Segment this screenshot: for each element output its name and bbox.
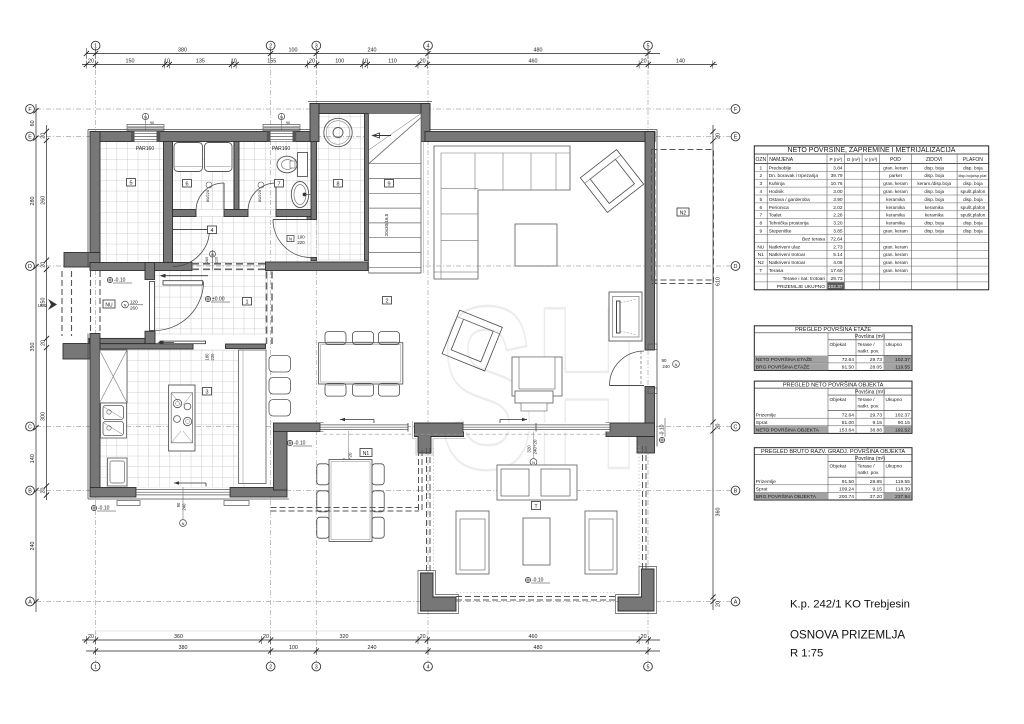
- svg-text:28.05: 28.05: [870, 365, 883, 371]
- svg-text:360: 360: [716, 508, 722, 517]
- svg-text:8: 8: [336, 182, 339, 188]
- svg-text:380: 380: [179, 645, 188, 651]
- svg-text:1: 1: [94, 665, 97, 671]
- svg-text:PREGLED POVRŠINA ETAŽE: PREGLED POVRŠINA ETAŽE: [795, 325, 871, 333]
- svg-text:keramika: keramika: [886, 213, 905, 218]
- svg-text:91.50: 91.50: [842, 479, 855, 485]
- svg-text:gran. keram: gran. keram: [883, 229, 908, 234]
- svg-text:Kuhinja: Kuhinja: [769, 181, 785, 187]
- svg-text:O (m²): O (m²): [847, 157, 861, 162]
- svg-text:BRG POVRŠINA OBJEKTA: BRG POVRŠINA OBJEKTA: [756, 493, 817, 500]
- svg-text:ZIDOVI: ZIDOVI: [926, 157, 943, 163]
- svg-text:300: 300: [41, 412, 47, 421]
- svg-text:NETO POVRŠINE, ZAPREMINE I MET: NETO POVRŠINE, ZAPREMINE I METRIJALIZACI…: [788, 145, 956, 154]
- svg-text:V (m³): V (m³): [865, 157, 878, 162]
- svg-text:155: 155: [267, 59, 276, 65]
- svg-text:20: 20: [41, 340, 47, 346]
- svg-text:192.52: 192.52: [895, 428, 910, 434]
- svg-text:10.76: 10.76: [831, 181, 843, 187]
- svg-text:Dn. boravak i trpezarija: Dn. boravak i trpezarija: [769, 173, 819, 179]
- svg-text:29.73: 29.73: [870, 412, 883, 418]
- svg-text:disp. boja: disp. boja: [963, 181, 983, 186]
- svg-text:disp. boja: disp. boja: [963, 221, 983, 226]
- svg-text:610: 610: [716, 277, 722, 286]
- svg-text:N: N: [280, 115, 283, 119]
- svg-text:20: 20: [88, 59, 94, 65]
- svg-text:10: 10: [231, 59, 237, 65]
- svg-text:natkr. pov.: natkr. pov.: [858, 348, 880, 354]
- svg-text:10: 10: [362, 59, 368, 65]
- svg-text:28.85: 28.85: [870, 479, 883, 485]
- svg-text:9: 9: [387, 182, 390, 188]
- svg-text:20x30/16.5: 20x30/16.5: [384, 213, 389, 236]
- svg-text:Terase /: Terase /: [858, 464, 876, 470]
- svg-text:gran. keram: gran. keram: [883, 244, 908, 249]
- svg-text:140: 140: [676, 59, 685, 65]
- svg-text:D: D: [28, 264, 32, 270]
- svg-text:-0.10: -0.10: [532, 578, 544, 584]
- svg-text:38.88: 38.88: [870, 428, 883, 434]
- svg-text:200.74: 200.74: [839, 494, 854, 500]
- svg-text:PREGLED NETO POVRŠINA OBJEKTA: PREGLED NETO POVRŠINA OBJEKTA: [783, 381, 884, 388]
- svg-text:102.37: 102.37: [828, 284, 843, 290]
- svg-text:153.64: 153.64: [839, 428, 854, 434]
- svg-text:D: D: [734, 264, 738, 270]
- svg-text:NETO POVRŠINA OBJEKTA: NETO POVRŠINA OBJEKTA: [756, 427, 820, 434]
- svg-text:Stepenište: Stepenište: [769, 229, 792, 235]
- svg-text:Ukupno: Ukupno: [886, 342, 903, 348]
- svg-text:320: 320: [340, 634, 349, 640]
- svg-text:460: 460: [529, 59, 538, 65]
- svg-text:3: 3: [759, 181, 762, 187]
- svg-text:81.00: 81.00: [842, 420, 855, 426]
- svg-text:PAR160: PAR160: [136, 146, 154, 152]
- svg-text:480: 480: [534, 645, 543, 651]
- svg-text:Terase i nat. trotoari: Terase i nat. trotoari: [783, 276, 825, 282]
- svg-text:N: N: [124, 303, 127, 307]
- svg-text:380: 380: [178, 48, 187, 54]
- svg-text:3.84: 3.84: [833, 165, 843, 171]
- svg-text:Prizemlje: Prizemlje: [756, 412, 776, 418]
- svg-text:72.64: 72.64: [842, 412, 855, 418]
- svg-text:N: N: [182, 522, 185, 526]
- svg-text:119.55: 119.55: [895, 365, 910, 371]
- svg-text:4: 4: [427, 665, 430, 671]
- svg-text:119.55: 119.55: [895, 479, 910, 485]
- svg-text:A: A: [28, 600, 32, 606]
- svg-text:3.85: 3.85: [833, 229, 843, 235]
- svg-text:20: 20: [263, 634, 269, 640]
- svg-text:parket: parket: [889, 173, 902, 178]
- svg-text:100: 100: [289, 48, 298, 54]
- svg-text:N: N: [289, 236, 292, 241]
- svg-text:2.02: 2.02: [833, 205, 843, 211]
- svg-text:R 1:75: R 1:75: [790, 648, 823, 660]
- svg-text:2.28: 2.28: [833, 213, 843, 219]
- svg-text:N1: N1: [363, 451, 370, 457]
- svg-text:20: 20: [41, 133, 47, 139]
- svg-text:POD: POD: [890, 157, 901, 163]
- svg-text:135: 135: [196, 59, 205, 65]
- svg-text:90: 90: [286, 121, 290, 125]
- svg-text:gran. keram: gran. keram: [883, 260, 908, 265]
- svg-text:N2: N2: [680, 210, 687, 216]
- svg-text:5.14: 5.14: [833, 252, 843, 258]
- svg-text:Terasa: Terasa: [769, 268, 784, 274]
- svg-text:B: B: [28, 489, 32, 495]
- svg-text:natkr. pov.: natkr. pov.: [858, 404, 880, 410]
- svg-text:keramika: keramika: [886, 197, 905, 202]
- svg-text:Toalet: Toalet: [769, 213, 782, 219]
- svg-text:6: 6: [759, 205, 762, 211]
- svg-text:Prizemlje: Prizemlje: [756, 479, 776, 485]
- svg-text:gran. keram: gran. keram: [883, 252, 908, 257]
- svg-text:T: T: [759, 268, 762, 274]
- svg-text:PAR160: PAR160: [272, 146, 290, 152]
- svg-text:Tehnička prostorija: Tehnička prostorija: [769, 221, 809, 227]
- svg-text:Terase /: Terase /: [858, 342, 876, 348]
- svg-text:3: 3: [205, 390, 208, 396]
- svg-text:N: N: [144, 115, 147, 119]
- svg-text:10: 10: [164, 59, 170, 65]
- svg-text:Površina (m²): Površina (m²): [855, 389, 885, 395]
- svg-text:Sprat: Sprat: [756, 487, 768, 493]
- svg-text:disp. boja: disp. boja: [963, 197, 983, 202]
- svg-text:9: 9: [759, 229, 762, 235]
- svg-text:37.20: 37.20: [870, 494, 883, 500]
- svg-text:disp. boja: disp. boja: [924, 189, 944, 194]
- svg-text:240: 240: [182, 503, 187, 511]
- svg-text:disp. boja: disp. boja: [924, 165, 944, 170]
- svg-text:Ostava / garderoba: Ostava / garderoba: [769, 197, 810, 203]
- svg-text:1: 1: [245, 300, 248, 306]
- svg-text:4: 4: [210, 228, 213, 234]
- svg-text:102.37: 102.37: [895, 357, 910, 363]
- svg-text:disp.boja/sp.plaf.: disp.boja/sp.plaf.: [958, 173, 987, 178]
- svg-text:109.24: 109.24: [839, 487, 854, 493]
- svg-text:2: 2: [385, 299, 388, 305]
- svg-text:PLAFON: PLAFON: [963, 157, 983, 163]
- svg-text:spušt.plafon: spušt.plafon: [961, 189, 986, 194]
- svg-text:260: 260: [130, 306, 138, 311]
- svg-text:disp. boja: disp. boja: [963, 229, 983, 234]
- svg-text:NU: NU: [757, 244, 764, 250]
- svg-text:-0.10: -0.10: [114, 278, 126, 284]
- svg-text:320: 320: [527, 445, 532, 453]
- svg-text:3.90: 3.90: [833, 197, 843, 203]
- svg-text:±0.00: ±0.00: [212, 297, 225, 303]
- svg-text:1: 1: [759, 165, 762, 171]
- svg-text:gran. keram: gran. keram: [883, 165, 908, 170]
- svg-text:spušt.plafon: spušt.plafon: [961, 213, 986, 218]
- svg-text:disp. boja: disp. boja: [924, 197, 944, 202]
- svg-text:N: N: [211, 253, 214, 257]
- svg-text:K.p. 242/1 KO Trebjesin: K.p. 242/1 KO Trebjesin: [790, 599, 910, 611]
- svg-text:Bez terasa: Bez terasa: [802, 236, 825, 242]
- svg-text:E: E: [28, 135, 32, 141]
- svg-text:2: 2: [269, 665, 272, 671]
- svg-text:3: 3: [315, 665, 318, 671]
- svg-text:gran. keram: gran. keram: [883, 268, 908, 273]
- svg-text:Sprat: Sprat: [756, 420, 768, 426]
- svg-text:N2: N2: [758, 260, 764, 266]
- svg-text:118.39: 118.39: [895, 487, 910, 493]
- svg-text:keram./disp.boja: keram./disp.boja: [917, 181, 951, 186]
- svg-text:20: 20: [716, 601, 722, 607]
- svg-text:280: 280: [30, 197, 36, 206]
- svg-text:220: 220: [214, 256, 219, 263]
- svg-text:N: N: [675, 363, 678, 367]
- svg-text:gran. keram: gran. keram: [883, 181, 908, 186]
- svg-text:Ukupno: Ukupno: [886, 464, 903, 470]
- svg-text:91.50: 91.50: [842, 365, 855, 371]
- svg-text:P (m²): P (m²): [829, 157, 842, 162]
- svg-text:6: 6: [185, 182, 188, 188]
- svg-text:237.94: 237.94: [895, 494, 910, 500]
- svg-text:N: N: [532, 461, 535, 465]
- svg-text:keramika: keramika: [886, 221, 905, 226]
- svg-text:NU: NU: [105, 302, 113, 308]
- svg-text:80/220: 80/220: [205, 189, 210, 202]
- svg-text:350: 350: [30, 343, 36, 352]
- svg-text:2.73: 2.73: [833, 244, 843, 250]
- svg-text:Ulaz: Ulaz: [38, 303, 48, 308]
- svg-text:20: 20: [641, 59, 647, 65]
- svg-text:disp. boja: disp. boja: [963, 165, 983, 170]
- svg-text:100: 100: [289, 645, 298, 651]
- svg-text:7: 7: [759, 213, 762, 219]
- svg-text:260: 260: [204, 256, 209, 263]
- svg-text:29.73: 29.73: [831, 276, 843, 282]
- svg-text:Objekat: Objekat: [830, 397, 847, 403]
- svg-text:100: 100: [335, 59, 344, 65]
- svg-text:Površina (m²): Površina (m²): [855, 456, 885, 462]
- svg-text:PRIZEMLJE UKUPNO: PRIZEMLJE UKUPNO: [777, 284, 826, 290]
- svg-text:Predsoblje: Predsoblje: [769, 165, 792, 171]
- svg-text:72.64: 72.64: [831, 236, 843, 242]
- svg-text:N1: N1: [758, 252, 764, 258]
- svg-text:240: 240: [30, 542, 36, 551]
- svg-text:20: 20: [716, 424, 722, 430]
- svg-text:T: T: [534, 504, 537, 510]
- svg-text:20: 20: [88, 634, 94, 640]
- svg-text:keramika: keramika: [886, 205, 905, 210]
- svg-text:80/220: 80/220: [257, 189, 262, 202]
- svg-text:17.60: 17.60: [831, 268, 843, 274]
- svg-text:180: 180: [205, 353, 210, 361]
- svg-text:Objekat: Objekat: [830, 464, 847, 470]
- svg-text:140: 140: [30, 454, 36, 463]
- svg-text:5: 5: [647, 665, 650, 671]
- svg-text:90: 90: [150, 121, 154, 125]
- svg-text:100: 100: [297, 235, 305, 240]
- svg-text:7: 7: [277, 182, 280, 188]
- svg-text:150: 150: [126, 59, 135, 65]
- svg-text:20: 20: [641, 634, 647, 640]
- svg-text:240: 240: [368, 645, 377, 651]
- svg-text:PREGLED BRUTO RAZV. GRADJ. POV: PREGLED BRUTO RAZV. GRADJ. POVRŠINA OBJE…: [761, 448, 905, 455]
- svg-text:Perionica: Perionica: [769, 205, 789, 211]
- svg-text:disp. boja: disp. boja: [924, 229, 944, 234]
- svg-text:220: 220: [297, 240, 305, 245]
- svg-text:72.64: 72.64: [842, 357, 855, 363]
- svg-text:NAMJENA: NAMJENA: [769, 157, 794, 163]
- svg-text:keramika: keramika: [925, 205, 944, 210]
- svg-text:Terase /: Terase /: [858, 397, 876, 403]
- svg-text:keramika: keramika: [925, 213, 944, 218]
- svg-text:460: 460: [529, 634, 538, 640]
- svg-text:20: 20: [309, 59, 315, 65]
- svg-text:20: 20: [420, 634, 426, 640]
- svg-text:Površina (m²): Površina (m²): [855, 334, 885, 340]
- svg-text:natkr. pov.: natkr. pov.: [858, 470, 880, 476]
- svg-text:B: B: [734, 489, 738, 495]
- svg-text:Ukupno: Ukupno: [886, 397, 903, 403]
- svg-text:3.00: 3.00: [833, 189, 843, 195]
- svg-text:OZN: OZN: [756, 157, 767, 163]
- svg-text:90.15: 90.15: [898, 420, 911, 426]
- svg-text:90: 90: [662, 358, 667, 363]
- svg-text:39.79: 39.79: [831, 173, 843, 179]
- svg-text:29.73: 29.73: [870, 357, 883, 363]
- svg-text:5: 5: [129, 181, 132, 187]
- svg-text:20: 20: [41, 488, 47, 494]
- svg-text:C: C: [734, 425, 738, 431]
- svg-text:C: C: [28, 425, 32, 431]
- svg-text:-0.10: -0.10: [294, 441, 306, 447]
- svg-text:120: 120: [130, 300, 138, 305]
- svg-text:A: A: [734, 600, 738, 606]
- svg-text:9.15: 9.15: [872, 487, 882, 493]
- svg-text:260: 260: [41, 196, 47, 205]
- svg-text:disp. boja: disp. boja: [924, 173, 944, 178]
- svg-text:Natkriveni trotoar: Natkriveni trotoar: [769, 260, 806, 266]
- svg-text:OSNOVA PRIZEMLJA: OSNOVA PRIZEMLJA: [790, 629, 905, 642]
- svg-text:disp. boja: disp. boja: [924, 221, 944, 226]
- svg-text:4: 4: [759, 189, 762, 195]
- svg-text:-0.10: -0.10: [660, 424, 666, 436]
- svg-text:360: 360: [174, 634, 183, 640]
- svg-text:9.15: 9.15: [872, 420, 882, 426]
- svg-text:Hodnik: Hodnik: [769, 189, 785, 195]
- svg-text:102.37: 102.37: [895, 412, 910, 418]
- svg-text:-0.10: -0.10: [98, 506, 110, 512]
- svg-text:2: 2: [759, 173, 762, 179]
- svg-text:220: 220: [210, 353, 215, 361]
- svg-text:E: E: [734, 135, 738, 141]
- svg-text:Objekat: Objekat: [830, 342, 847, 348]
- svg-text:gran. keram: gran. keram: [883, 189, 908, 194]
- svg-text:20: 20: [41, 262, 47, 268]
- svg-text:spušt.plafon: spušt.plafon: [961, 205, 986, 210]
- svg-text:Natkriveni trotoar: Natkriveni trotoar: [769, 252, 806, 258]
- svg-text:240: 240: [662, 364, 670, 369]
- svg-text:240: 240: [368, 48, 377, 54]
- svg-text:90: 90: [176, 502, 181, 507]
- svg-text:Natkriveni ulaz: Natkriveni ulaz: [769, 244, 801, 250]
- svg-text:480: 480: [534, 48, 543, 54]
- svg-text:3.20: 3.20: [833, 221, 843, 227]
- svg-text:4.06: 4.06: [833, 260, 843, 266]
- svg-text:60: 60: [30, 120, 36, 126]
- svg-text:5: 5: [759, 197, 762, 203]
- svg-text:110: 110: [388, 59, 397, 65]
- svg-text:8: 8: [759, 221, 762, 227]
- svg-text:20: 20: [716, 133, 722, 139]
- svg-text:20: 20: [420, 59, 426, 65]
